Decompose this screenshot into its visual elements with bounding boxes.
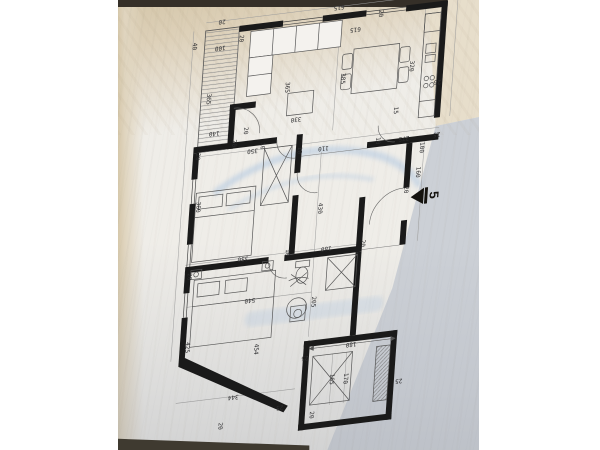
apartment-number: 5 [426, 190, 441, 199]
dimension-label: 365 [205, 93, 212, 105]
dimension-label: 160 [414, 166, 421, 178]
dimension-label: 180 [321, 244, 332, 251]
dimension-label: 25 [276, 403, 284, 410]
entrance-marker: 5 [410, 186, 438, 206]
dimension-label: 350 [247, 146, 258, 153]
dimension-label: 20 [185, 273, 191, 281]
entrance-arrow-icon [410, 188, 424, 206]
dimension-label: 10 [258, 142, 264, 150]
dimension-label: 615 [334, 3, 345, 10]
dimension-label: 140 [209, 129, 220, 136]
dimension-label: 25 [434, 78, 442, 85]
dimension-label: 20 [218, 17, 226, 24]
dimension-label: 15 [392, 106, 398, 114]
dimension-label: 20 [194, 153, 200, 161]
dimension-label: 20 [308, 411, 314, 419]
coffee-table [286, 90, 313, 116]
dimension-label: 425 [183, 342, 190, 354]
dining-table [340, 42, 411, 95]
dimension-label: 10 [283, 249, 289, 257]
dimension-label: 20 [359, 239, 365, 247]
floorplan-svg [152, 0, 471, 450]
dimension-label: 25 [301, 354, 309, 361]
dimension-label: 430 [316, 203, 323, 215]
dimension-label: 20 [216, 422, 222, 430]
dimension-label: 365 [283, 82, 290, 94]
dimension-label: 344 [228, 393, 239, 400]
dimension-label: 454 [252, 343, 259, 355]
dimension-label: 100 [215, 44, 226, 51]
dimension-label: 540 [244, 296, 255, 303]
dimension-label: 320 [408, 60, 415, 72]
screenshot-canvas: 2061520401002036514020365330201061520385… [0, 0, 600, 450]
dimension-label: 385 [339, 73, 346, 85]
dimension-label: 10 [296, 147, 302, 155]
dimension-label: 350 [237, 254, 248, 261]
dimension-label: 10 [374, 137, 380, 145]
dimension-label: 275 [398, 134, 409, 141]
dimension-label: 40 [191, 43, 197, 51]
dimension-label: 25 [433, 130, 441, 137]
dimension-label: 330 [290, 115, 301, 122]
dimension-label: 360 [194, 201, 201, 213]
sofa [246, 20, 342, 96]
dimension-label: 25 [395, 377, 403, 384]
dimension-label: 205 [309, 296, 316, 308]
floorplan-photo: 2061520401002036514020365330201061520385… [118, 0, 479, 450]
floorplan-drawing: 2061520401002036514020365330201061520385… [152, 0, 471, 450]
dimension-label: 170 [341, 373, 348, 385]
dimension-label: 165 [328, 373, 335, 385]
dimension-label: 20 [402, 186, 408, 194]
dimension-label: 100 [418, 142, 425, 154]
dimension-label: 20 [237, 35, 243, 43]
dimension-label: 180 [346, 340, 357, 347]
dimension-label: 20 [242, 127, 248, 135]
dimension-label: 20 [230, 139, 236, 147]
dimension-label: 615 [350, 25, 361, 32]
dimension-label: 110 [318, 144, 329, 151]
dimension-label: 20 [377, 10, 383, 18]
